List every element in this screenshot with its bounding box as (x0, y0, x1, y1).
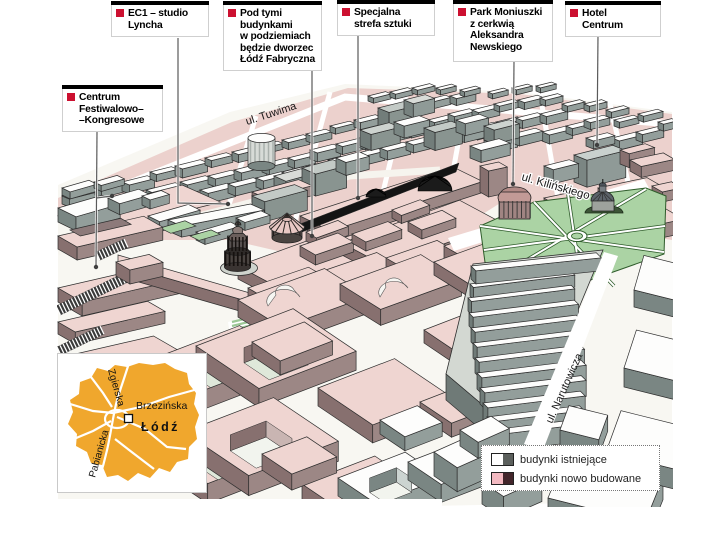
svg-text:Brzezińska: Brzezińska (136, 400, 188, 412)
svg-text:Łódź: Łódź (141, 420, 180, 434)
